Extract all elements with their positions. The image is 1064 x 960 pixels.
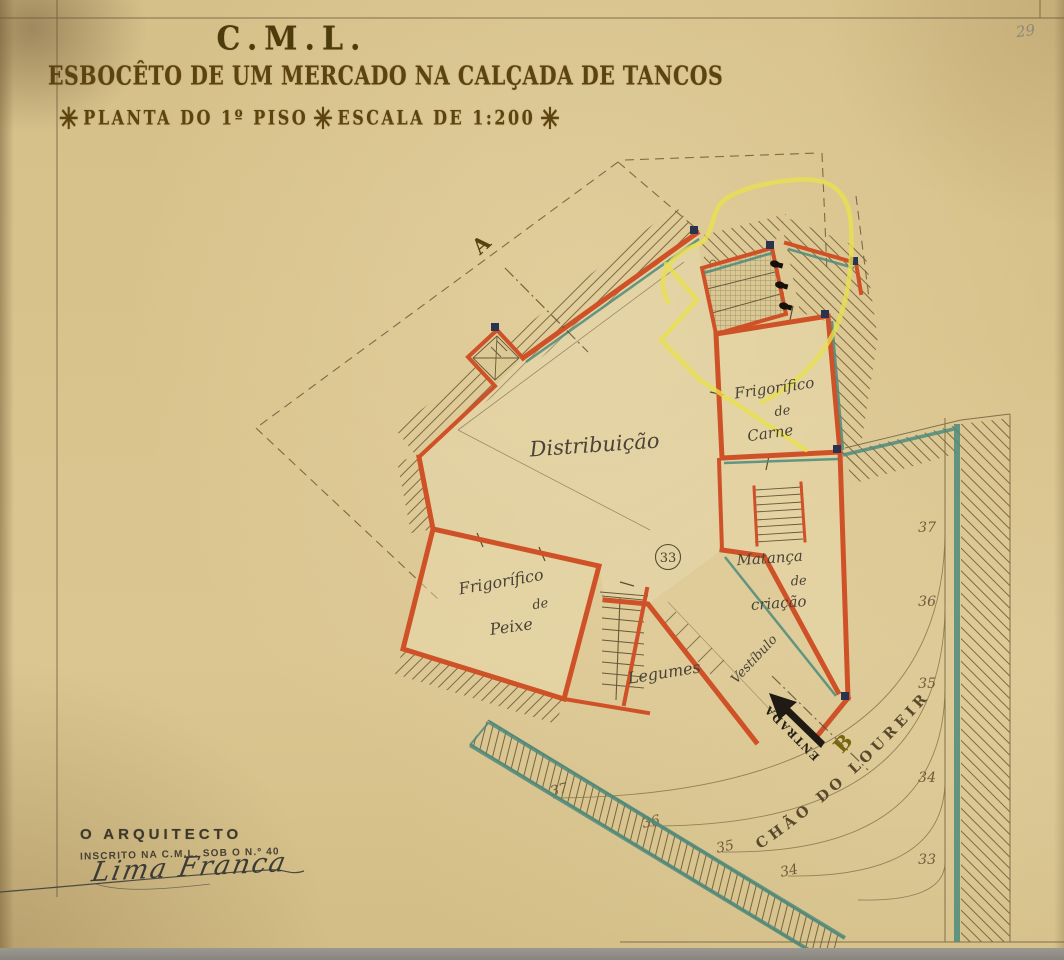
- scanned-plan-sheet: 37 36 35 34 33 37 36 35 34: [0, 0, 1064, 960]
- scale-label: ESCALA DE 1:200: [338, 106, 536, 130]
- section-marker-b: B: [828, 729, 857, 758]
- org-title: C.M.L.: [182, 20, 402, 59]
- room-label-vestibulo: Vestíbulo: [728, 632, 780, 687]
- scanner-edge: [0, 948, 1064, 960]
- drawing-subtitle: ✳PLANTA DO 1º PISO✳ESCALA DE 1:200✳: [54, 102, 565, 136]
- contour-label: 33: [918, 852, 936, 868]
- star-icon: ✳: [54, 102, 83, 136]
- room-label-peixe-2: de: [531, 596, 550, 614]
- star-icon: ✳: [535, 102, 564, 136]
- architect-role: O ARQUITECTO: [80, 826, 280, 843]
- contour-label: 34: [918, 770, 936, 786]
- drawing-title: ESBOCÊTO DE UM MERCADO NA CALÇADA DE TAN…: [48, 60, 723, 91]
- stall-number: 33: [660, 551, 677, 566]
- contour-label: 36: [918, 594, 936, 610]
- star-icon: ✳: [308, 102, 337, 136]
- contour-label: 37: [918, 520, 936, 536]
- room-label-legumes: Legumes: [625, 657, 702, 687]
- room-label-carne-2: de: [774, 403, 792, 420]
- room-label-matanca-2: de: [790, 573, 807, 589]
- contour-label: 35: [715, 837, 736, 856]
- plan-label: PLANTA DO 1º PISO: [83, 106, 308, 130]
- contour-label: 34: [779, 861, 800, 880]
- page-number-annotation: 29: [1015, 21, 1036, 41]
- floor-plan-drawing: 37 36 35 34 33 37 36 35 34: [0, 0, 1064, 960]
